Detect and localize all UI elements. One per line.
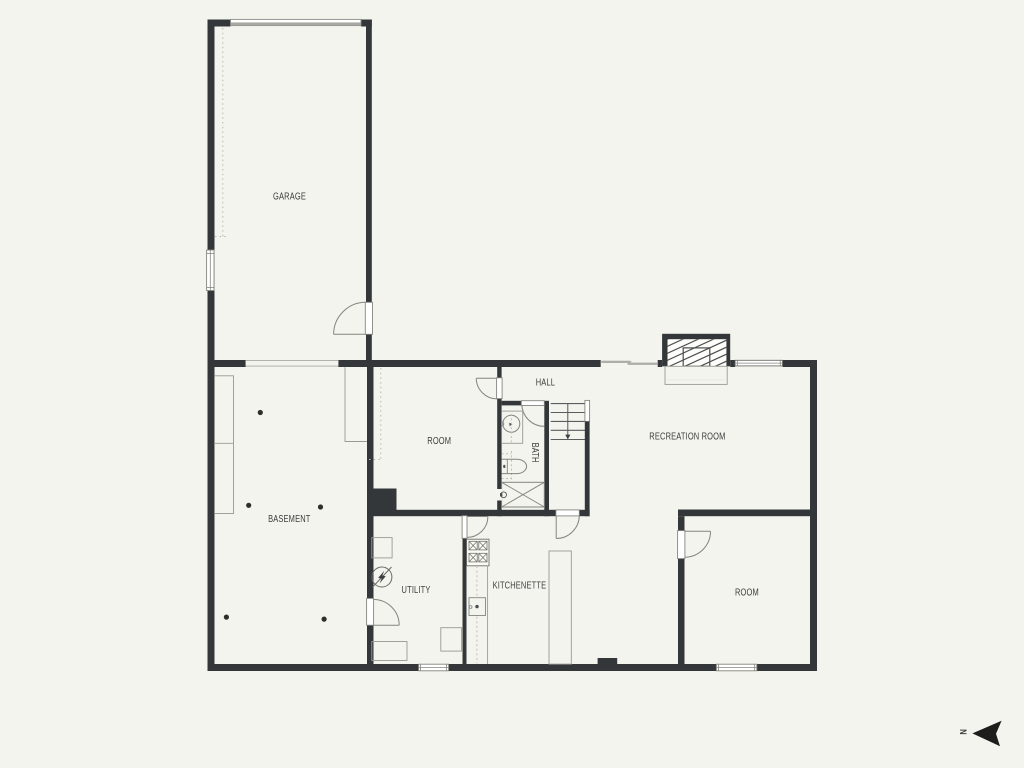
svg-text:UTILITY: UTILITY [402, 584, 431, 595]
svg-text:ROOM: ROOM [735, 587, 759, 598]
svg-text:N: N [958, 729, 969, 734]
svg-text:ROOM: ROOM [427, 435, 451, 446]
svg-text:GARAGE: GARAGE [273, 190, 306, 201]
svg-text:KITCHENETTE: KITCHENETTE [493, 579, 547, 590]
svg-text:HALL: HALL [536, 377, 555, 388]
svg-text:RECREATION ROOM: RECREATION ROOM [649, 431, 725, 442]
svg-text:BATH: BATH [530, 443, 541, 463]
svg-text:BASEMENT: BASEMENT [268, 513, 311, 524]
